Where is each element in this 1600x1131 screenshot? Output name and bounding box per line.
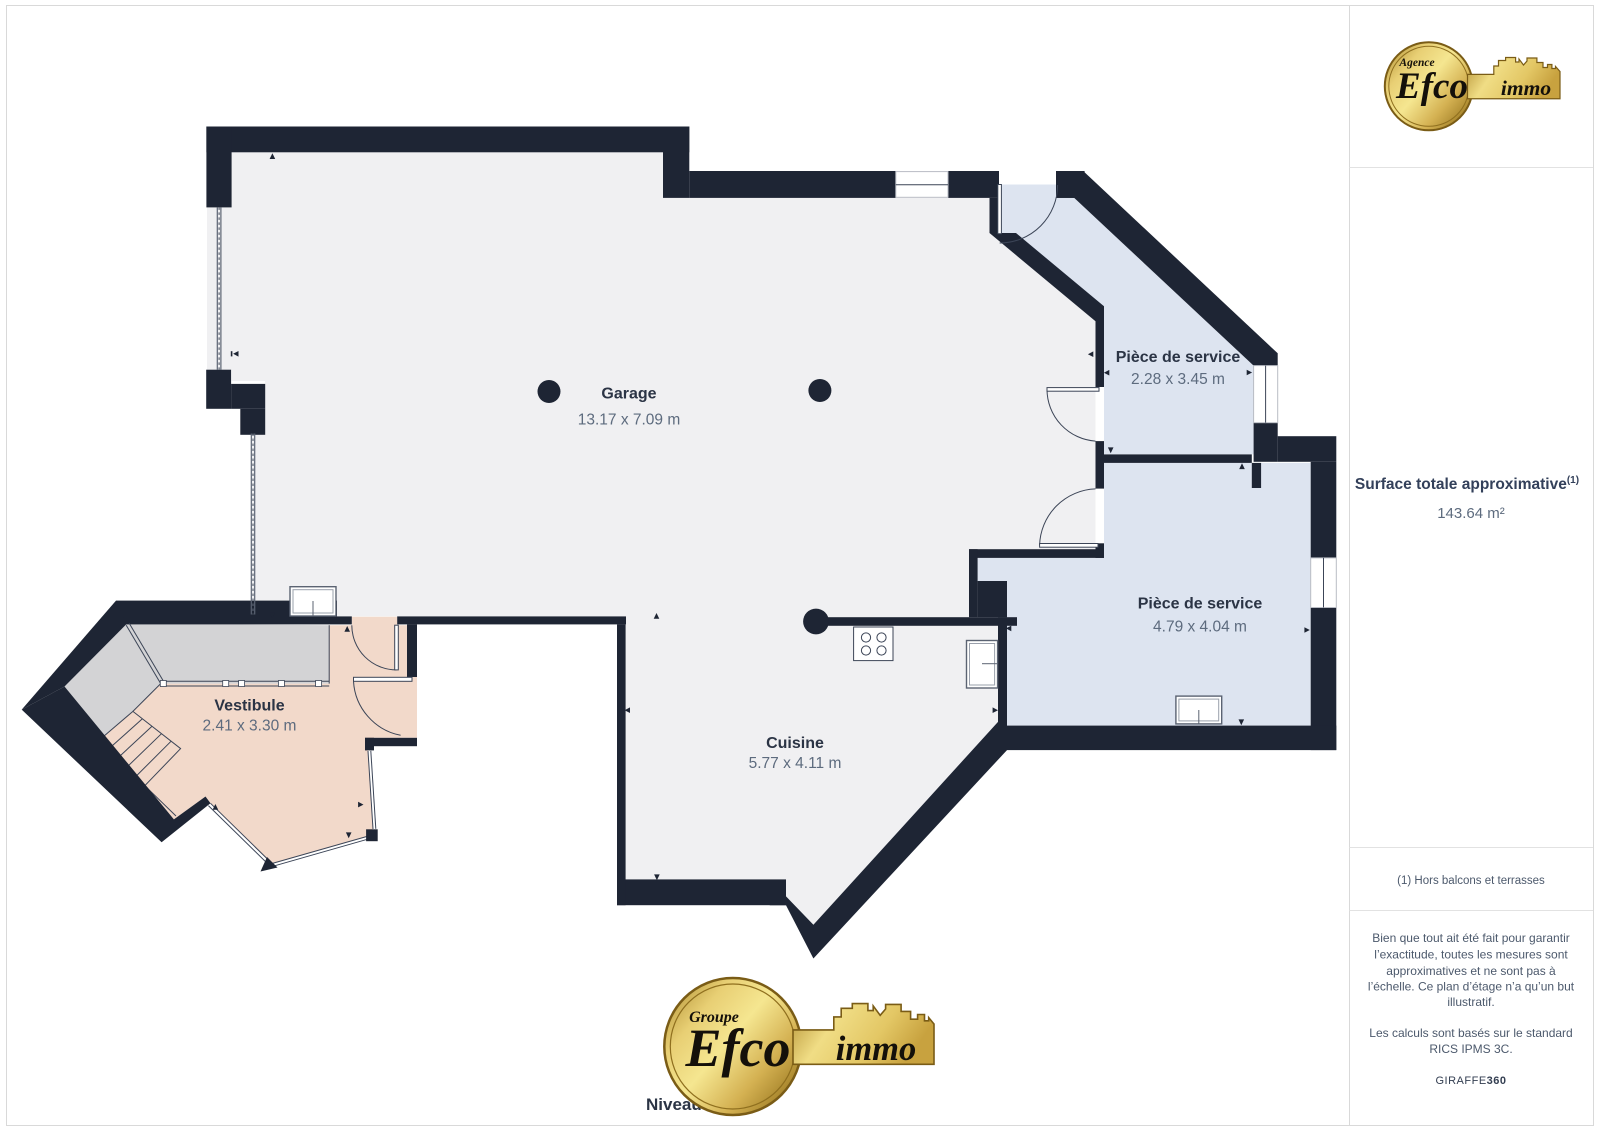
svg-text:Pièce de service: Pièce de service: [1138, 596, 1263, 613]
svg-text:Vestibule: Vestibule: [214, 698, 284, 715]
svg-text:(1) Hors balcons et terrasses: (1) Hors balcons et terrasses: [1397, 875, 1545, 887]
svg-text:2.41 x 3.30 m: 2.41 x 3.30 m: [203, 718, 297, 735]
svg-text:illustratif.: illustratif.: [1447, 995, 1494, 1009]
svg-text:5.77 x 4.11 m: 5.77 x 4.11 m: [749, 755, 842, 772]
svg-text:immo: immo: [1501, 76, 1551, 100]
svg-text:l’exactitude, toutes les mesur: l’exactitude, toutes les mesures sont: [1374, 948, 1568, 962]
svg-text:Les calculs sont basés sur le: Les calculs sont basés sur le standard: [1369, 1026, 1572, 1040]
svg-text:Cuisine: Cuisine: [766, 735, 824, 752]
svg-text:13.17 x 7.09 m: 13.17 x 7.09 m: [578, 412, 681, 429]
svg-text:2.28 x 3.45 m: 2.28 x 3.45 m: [1131, 371, 1225, 388]
svg-text:Pièce de service: Pièce de service: [1116, 349, 1241, 366]
svg-text:Efco: Efco: [1395, 66, 1468, 107]
svg-text:Surface totale approximative(1: Surface totale approximative(1): [1355, 475, 1579, 493]
svg-text:GIRAFFE360: GIRAFFE360: [1435, 1075, 1506, 1087]
svg-text:approximatives et ne sont pas: approximatives et ne sont pas à: [1386, 964, 1556, 978]
svg-text:143.64 m²: 143.64 m²: [1437, 505, 1505, 522]
svg-text:Garage: Garage: [601, 386, 656, 403]
svg-text:Bien que tout ait été fait pou: Bien que tout ait été fait pour garantir: [1372, 931, 1569, 945]
svg-text:Efco: Efco: [685, 1018, 791, 1078]
svg-text:immo: immo: [836, 1030, 917, 1068]
svg-text:4.79 x 4.04 m: 4.79 x 4.04 m: [1153, 619, 1247, 636]
svg-text:l’échelle. Ce plan d’étage n’a: l’échelle. Ce plan d’étage n’a qu’un but: [1368, 980, 1575, 994]
svg-text:RICS IPMS 3C.: RICS IPMS 3C.: [1429, 1042, 1512, 1056]
